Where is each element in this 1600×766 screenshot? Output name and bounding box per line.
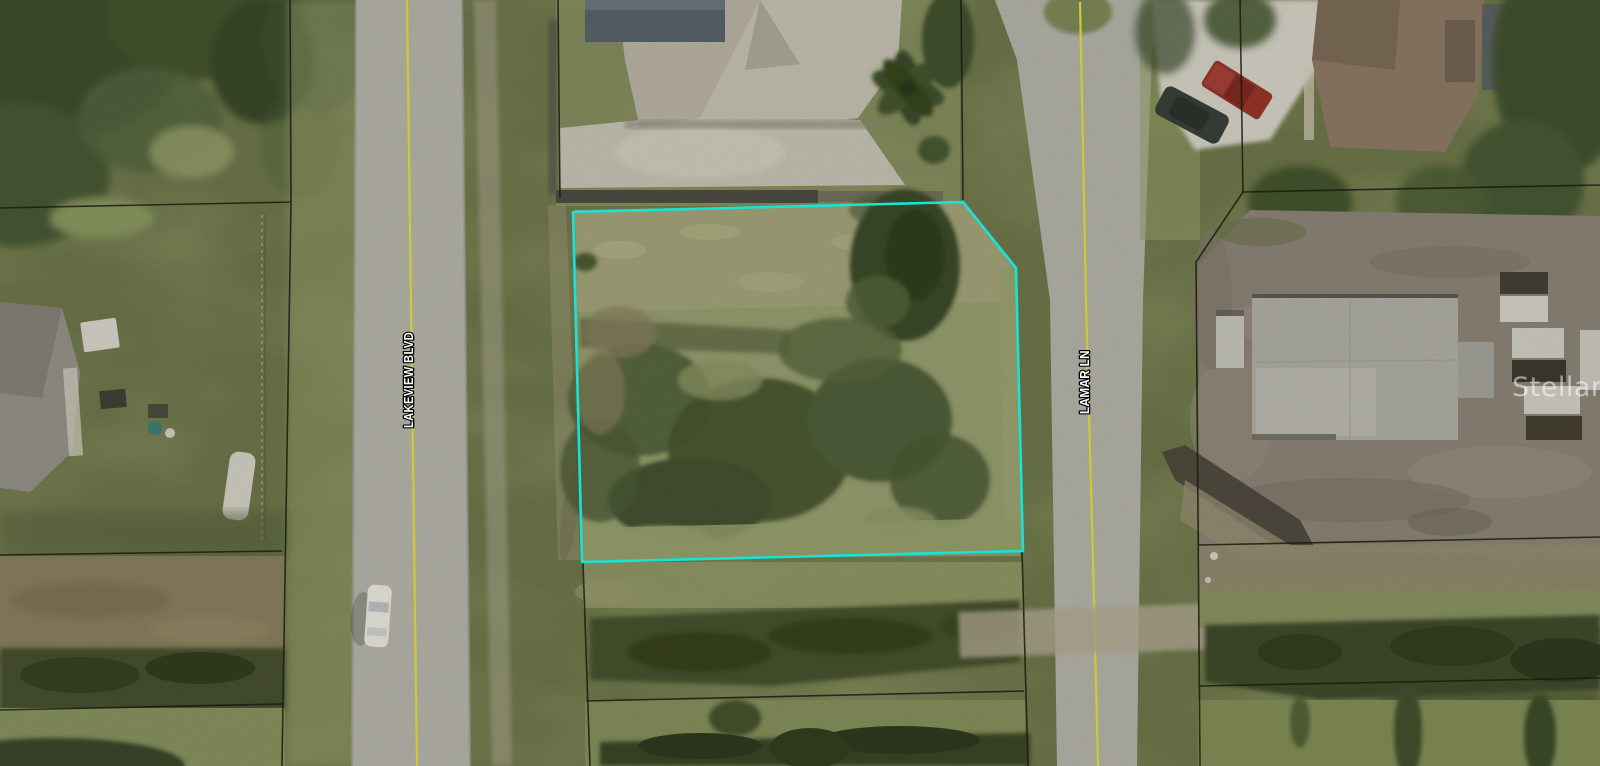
aerial-photo-map: LAKEVIEW BLVD LAMAR LN Stellar MLS [0, 0, 1600, 766]
street-label-lakeview-blvd: LAKEVIEW BLVD [401, 332, 416, 428]
aerial-photo-canvas: LAKEVIEW BLVD LAMAR LN Stellar MLS [0, 0, 1600, 766]
stellar-mls-watermark: Stellar MLS [1512, 372, 1600, 403]
street-label-lamar-ln: LAMAR LN [1077, 350, 1092, 414]
photo-grain-texture [0, 0, 1600, 766]
